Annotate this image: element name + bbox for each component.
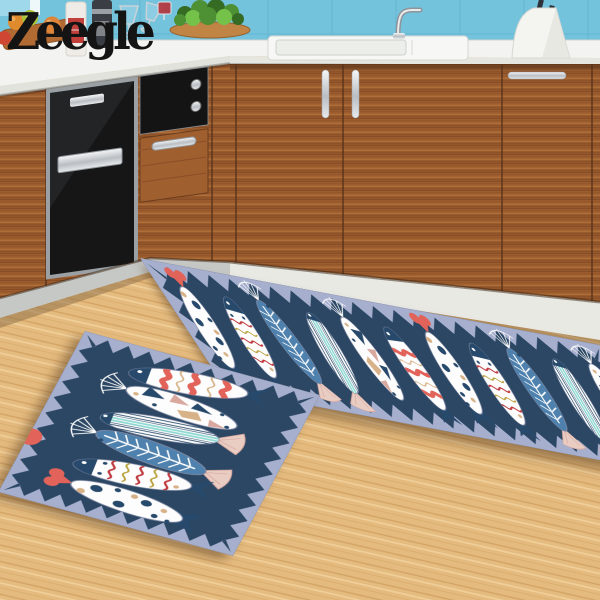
sink (268, 36, 468, 60)
oven (140, 67, 208, 135)
door-handle (322, 70, 329, 118)
drawer-handle (508, 72, 566, 79)
brand-logo: Zeegle (6, 6, 151, 59)
product-photo: Zeegle (0, 0, 600, 600)
door-handle (352, 70, 359, 118)
